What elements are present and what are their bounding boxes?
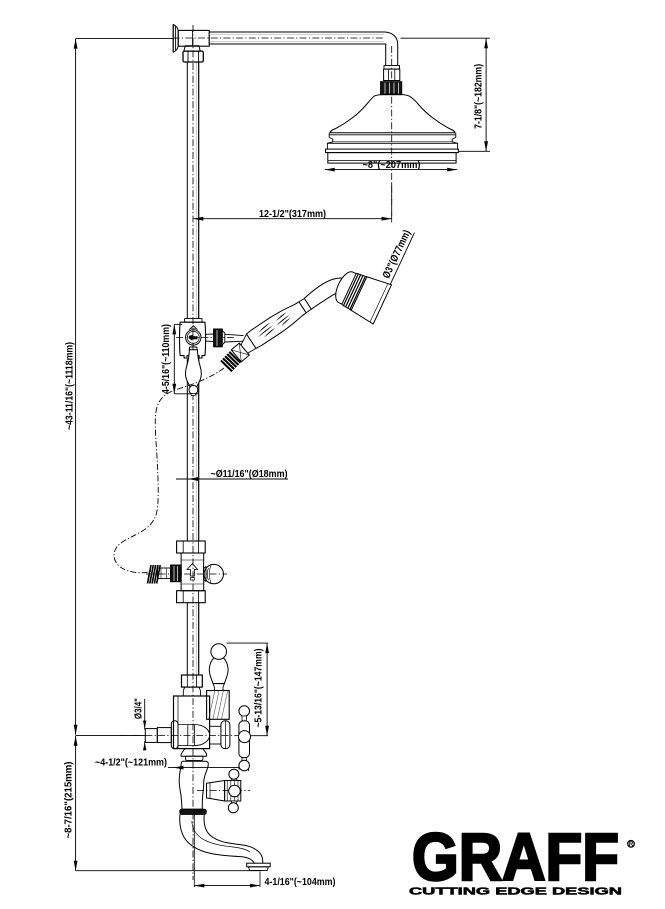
- svg-text:~5-13/16"(~147mm): ~5-13/16"(~147mm): [253, 649, 265, 728]
- svg-text:~Ø11/16"(Ø18mm): ~Ø11/16"(Ø18mm): [211, 468, 288, 480]
- svg-text:GRAFF: GRAFF: [412, 820, 619, 895]
- svg-text:Ø3"(Ø77mm): Ø3"(Ø77mm): [380, 228, 413, 280]
- svg-text:R: R: [629, 842, 634, 848]
- svg-text:4-5/16"(~110mm): 4-5/16"(~110mm): [160, 324, 172, 394]
- svg-text:7-1/8"(~182mm): 7-1/8"(~182mm): [473, 64, 485, 129]
- svg-text:12-1/2"(317mm): 12-1/2"(317mm): [259, 208, 326, 220]
- svg-text:~43-11/16"(~1118mm): ~43-11/16"(~1118mm): [63, 342, 75, 430]
- svg-text:~8-7/16"(215mm): ~8-7/16"(215mm): [63, 762, 75, 839]
- svg-text:4-1/16"(~104mm): 4-1/16"(~104mm): [265, 876, 336, 888]
- svg-text:CUTTING EDGE DESIGN: CUTTING EDGE DESIGN: [409, 886, 622, 897]
- svg-text:Ø3/4": Ø3/4": [133, 698, 145, 719]
- svg-text:~4-1/2"(~121mm): ~4-1/2"(~121mm): [95, 757, 167, 769]
- svg-text:~8"(~207mm): ~8"(~207mm): [363, 159, 421, 171]
